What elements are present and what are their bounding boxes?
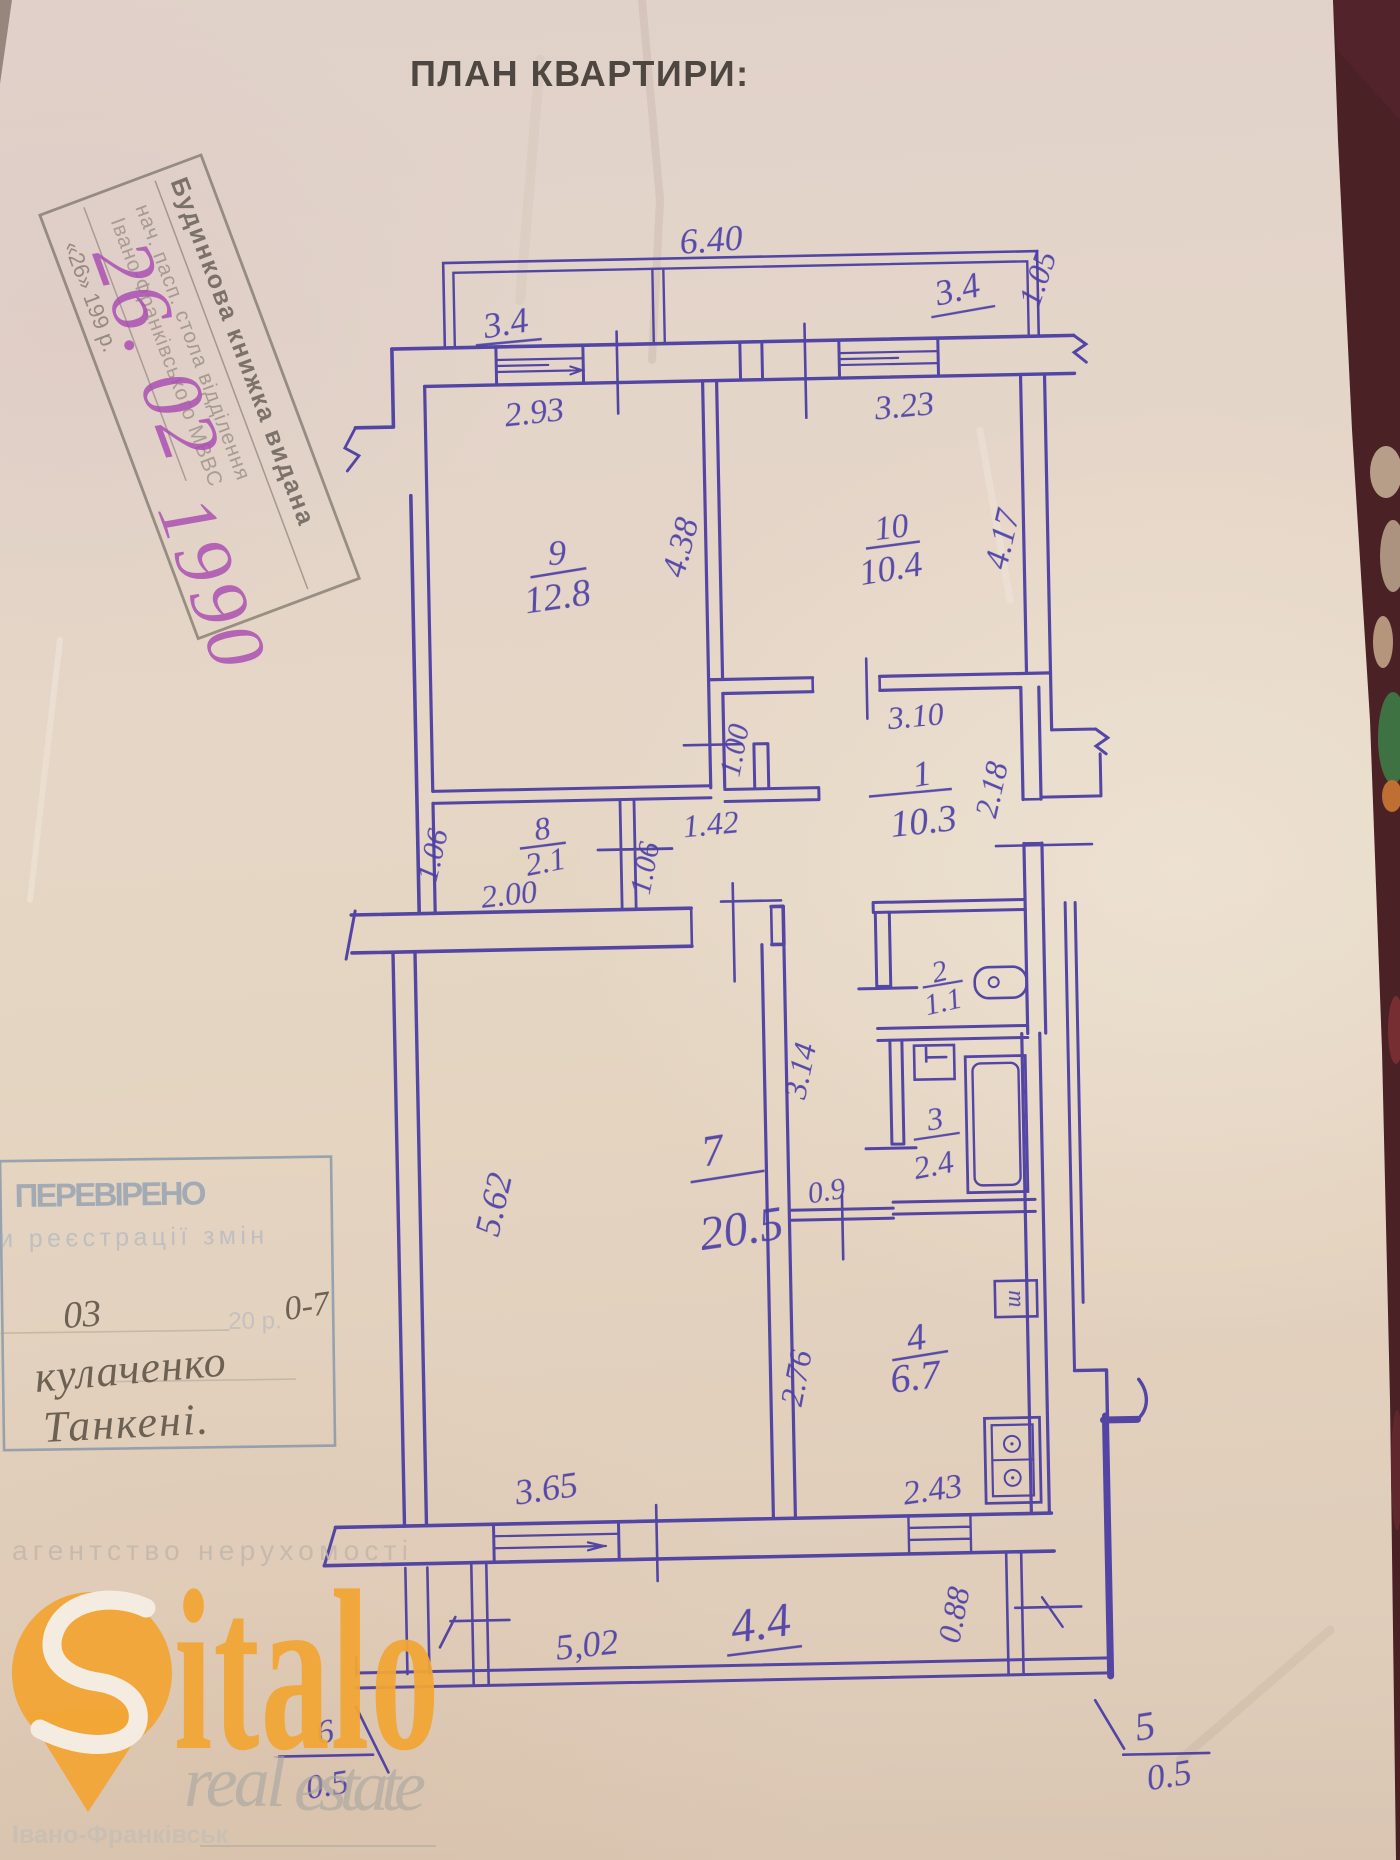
svg-text:0.5: 0.5: [1144, 1752, 1195, 1799]
svg-text:Івано-Франківськ: Івано-Франківськ: [12, 1821, 229, 1849]
svg-text:9: 9: [548, 533, 567, 573]
svg-text:ПЕРЕВІРЕНО: ПЕРЕВІРЕНО: [14, 1174, 207, 1214]
svg-text:4.4: 4.4: [727, 1593, 794, 1654]
svg-text:0-7: 0-7: [282, 1285, 334, 1328]
svg-text:1.42: 1.42: [681, 803, 740, 844]
svg-text:т: т: [1003, 1290, 1029, 1308]
svg-text:0.9: 0.9: [805, 1172, 847, 1211]
svg-text:2.00: 2.00: [479, 873, 539, 915]
svg-text:Танкені.: Танкені.: [42, 1394, 211, 1452]
svg-text:20 р.: 20 р.: [228, 1307, 282, 1335]
svg-text:6.40: 6.40: [678, 217, 744, 261]
svg-text:и реєстрації змін: и реєстрації змін: [0, 1222, 265, 1254]
svg-text:5,02: 5,02: [553, 1621, 620, 1668]
svg-text:3.23: 3.23: [872, 385, 936, 427]
svg-text:03: 03: [62, 1292, 103, 1337]
svg-text:10.3: 10.3: [888, 797, 959, 846]
svg-text:2.4: 2.4: [910, 1143, 956, 1186]
svg-text:6.7: 6.7: [888, 1351, 945, 1402]
svg-text:10: 10: [872, 507, 910, 548]
svg-text:3.4: 3.4: [479, 300, 531, 347]
svg-text:2.93: 2.93: [503, 391, 566, 434]
svg-text:3.10: 3.10: [885, 695, 945, 736]
svg-text:real: real: [184, 1742, 286, 1822]
svg-text:ПЛАН КВАРТИРИ:: ПЛАН КВАРТИРИ:: [410, 53, 750, 94]
svg-text:estate: estate: [294, 1746, 426, 1826]
